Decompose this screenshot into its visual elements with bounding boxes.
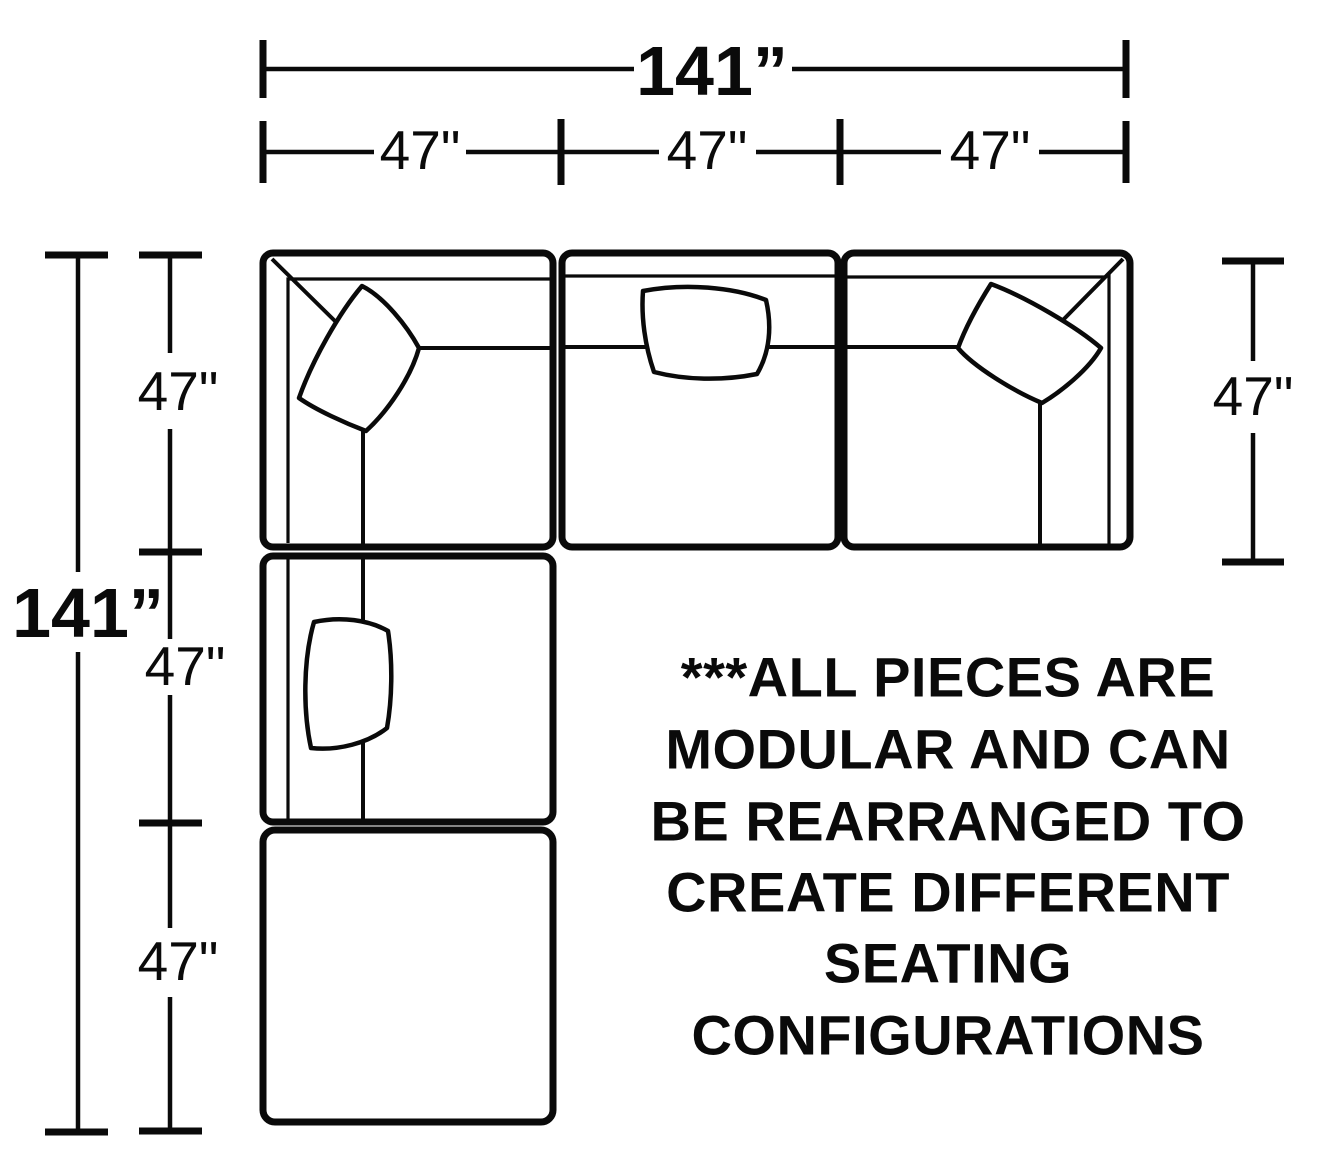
- dim-label-left-seg-1: 47": [138, 360, 219, 422]
- dimension-top-segments: 47" 47" 47": [263, 119, 1126, 185]
- note-line-6: CONFIGURATIONS: [691, 1004, 1204, 1067]
- dim-label-right-seg: 47": [1213, 365, 1294, 427]
- sofa-armless-left-middle: [263, 556, 553, 822]
- piece-outline: [263, 830, 553, 1122]
- sectional-sofa-diagram-page: 141” 47" 47" 47" 141” 47" 47" 47": [0, 0, 1329, 1160]
- modular-note: ***ALL PIECES ARE MODULAR AND CAN BE REA…: [650, 646, 1245, 1067]
- dim-label-left-seg-3: 47": [138, 930, 219, 992]
- note-line-2: MODULAR AND CAN: [665, 718, 1230, 781]
- sofa-armless-top-center: [562, 253, 838, 547]
- back-pillow-shape: [642, 287, 769, 379]
- sofa-corner-top-left: [263, 253, 553, 547]
- dim-label-top-total: 141”: [636, 32, 788, 110]
- dim-label-top-seg-2: 47": [667, 119, 748, 181]
- dim-label-left-total: 141”: [12, 574, 164, 652]
- dim-label-top-seg-3: 47": [950, 119, 1031, 181]
- dim-label-top-seg-1: 47": [380, 119, 461, 181]
- sofa-ottoman-bottom-left: [263, 830, 553, 1122]
- dimension-right-segment: 47": [1213, 261, 1294, 562]
- dimension-top-total: 141”: [263, 32, 1126, 110]
- dim-label-left-seg-2: 47": [145, 635, 226, 697]
- back-pillow-shape: [305, 619, 391, 748]
- note-line-3: BE REARRANGED TO: [650, 790, 1245, 853]
- note-line-4: CREATE DIFFERENT: [666, 861, 1230, 924]
- sofa-corner-top-right: [844, 253, 1130, 547]
- dimension-left-segments: 47" 47" 47": [138, 255, 226, 1131]
- sectional-sofa-diagram: 141” 47" 47" 47" 141” 47" 47" 47": [0, 0, 1329, 1160]
- note-line-1: ***ALL PIECES ARE: [681, 646, 1215, 709]
- note-line-5: SEATING: [824, 932, 1072, 995]
